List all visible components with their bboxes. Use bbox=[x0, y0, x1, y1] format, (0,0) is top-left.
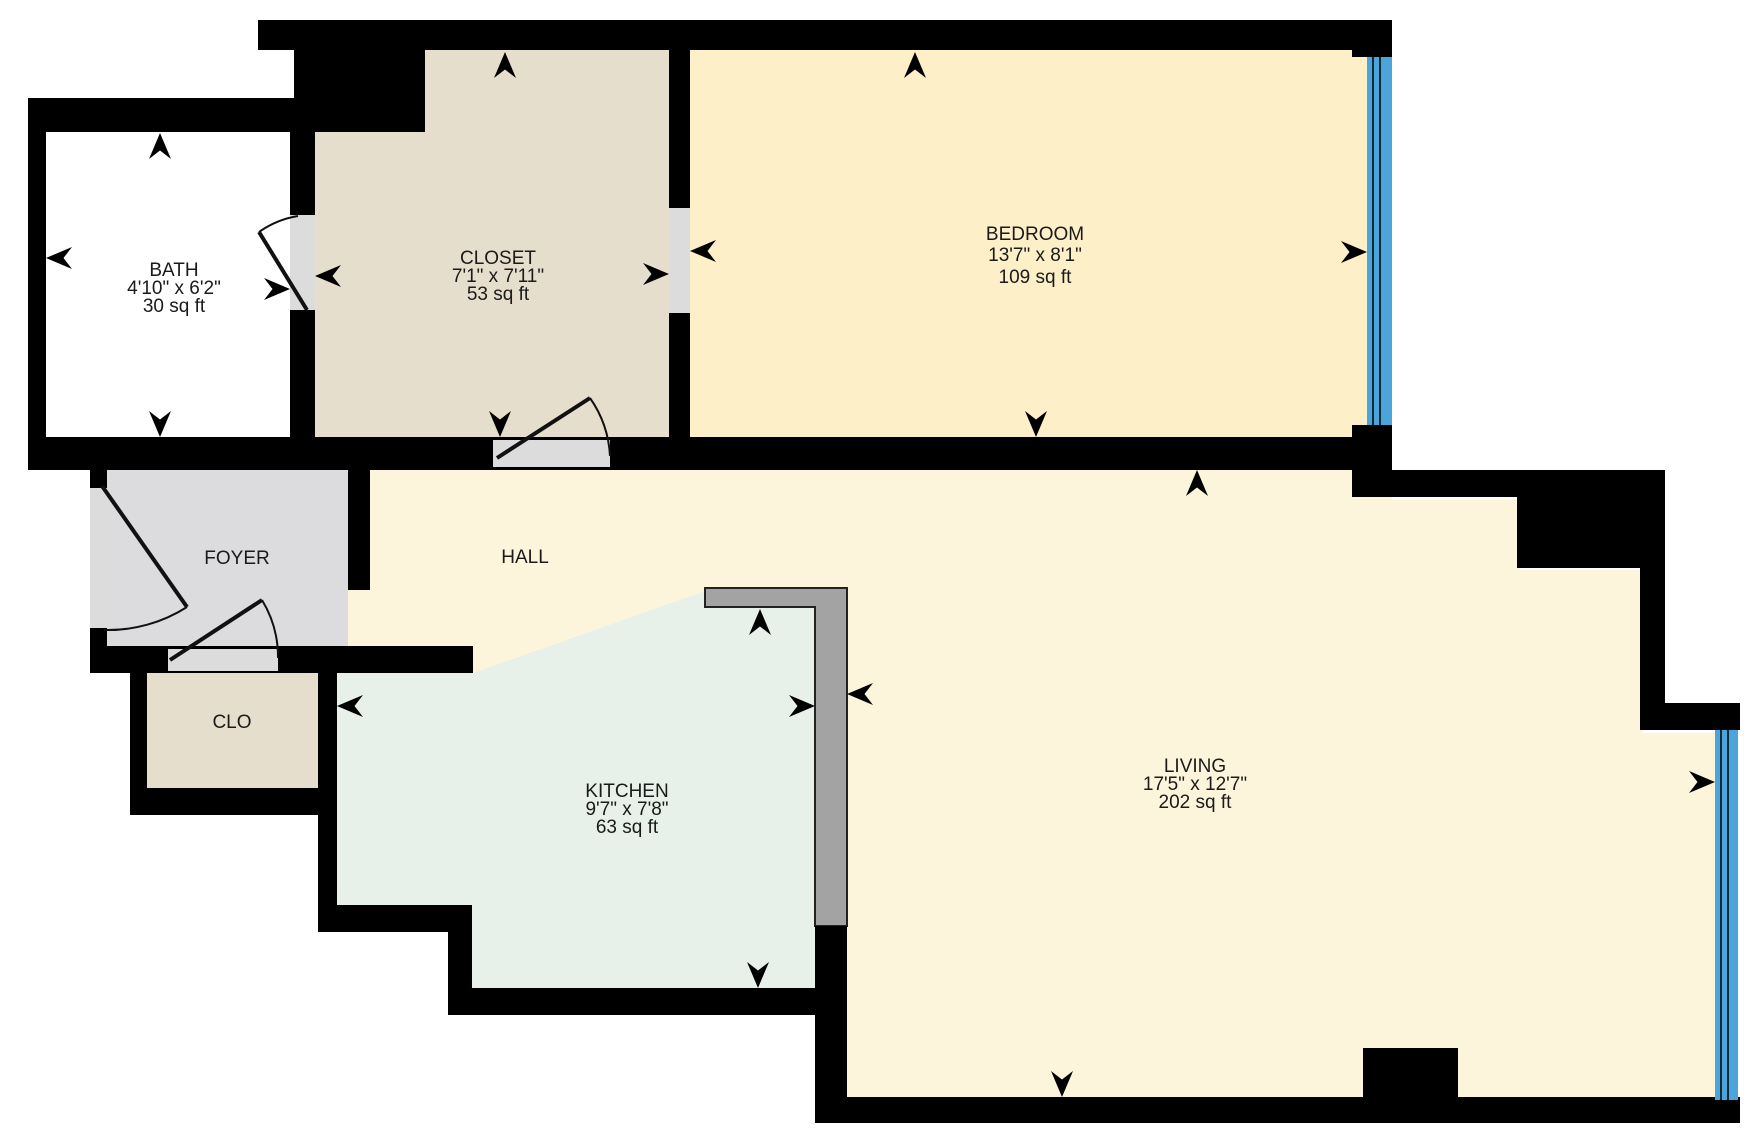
bedroom-name: BEDROOM bbox=[986, 224, 1084, 245]
foyer-name: FOYER bbox=[204, 548, 269, 569]
wall-bath-top bbox=[28, 98, 315, 132]
wall-living-right-col bbox=[1640, 568, 1665, 710]
kitchen-area: 63 sq ft bbox=[596, 817, 659, 838]
wall-bottom-band bbox=[821, 1097, 1740, 1123]
wall-kitchen-step-band bbox=[320, 905, 472, 932]
wall-foyer-right bbox=[348, 466, 370, 590]
bedroom-area: 109 sq ft bbox=[999, 267, 1073, 288]
hall-label: HALL bbox=[501, 547, 549, 568]
closet-door-opening bbox=[493, 440, 610, 467]
wall-kitchen-living bbox=[815, 926, 847, 1123]
foyer-label: FOYER bbox=[204, 548, 269, 569]
bedroom-door-opening bbox=[669, 208, 690, 313]
kitchen-label: KITCHEN 9'7" x 7'8" 63 sq ft bbox=[585, 781, 668, 838]
wall-top-band bbox=[258, 20, 1392, 50]
living-window bbox=[1715, 730, 1738, 1100]
clo-name: CLO bbox=[212, 712, 251, 733]
bedroom-label: BEDROOM 13'7" x 8'1" 109 sq ft bbox=[986, 224, 1084, 288]
wall-mid-band bbox=[28, 437, 1392, 470]
clo-label: CLO bbox=[212, 712, 251, 733]
wall-living-tr-block bbox=[1517, 470, 1665, 568]
bedroom-window bbox=[1367, 57, 1392, 425]
wall-window-stub-top bbox=[1352, 20, 1392, 57]
wall-bottom-notch bbox=[1363, 1048, 1458, 1097]
bath-area: 30 sq ft bbox=[143, 296, 206, 317]
wall-living-right-band bbox=[1640, 703, 1740, 730]
wall-foyer-bottom bbox=[90, 646, 473, 673]
living-area: 202 sq ft bbox=[1159, 792, 1233, 813]
wall-clo-bottom bbox=[130, 788, 337, 815]
bath-door-opening bbox=[290, 215, 315, 310]
wall-kitchen-bottom bbox=[448, 988, 815, 1015]
entry-door-opening bbox=[90, 488, 107, 628]
floor-plan-svg: BATH 4'10" x 6'2" 30 sq ft CLOSET 7'1" x… bbox=[0, 0, 1762, 1140]
wall-bath-left bbox=[28, 98, 46, 440]
bedroom-dimensions: 13'7" x 8'1" bbox=[988, 245, 1082, 266]
hall-name: HALL bbox=[501, 547, 549, 568]
closet-area: 53 sq ft bbox=[467, 284, 530, 305]
floor-plan: BATH 4'10" x 6'2" 30 sq ft CLOSET 7'1" x… bbox=[0, 0, 1762, 1140]
